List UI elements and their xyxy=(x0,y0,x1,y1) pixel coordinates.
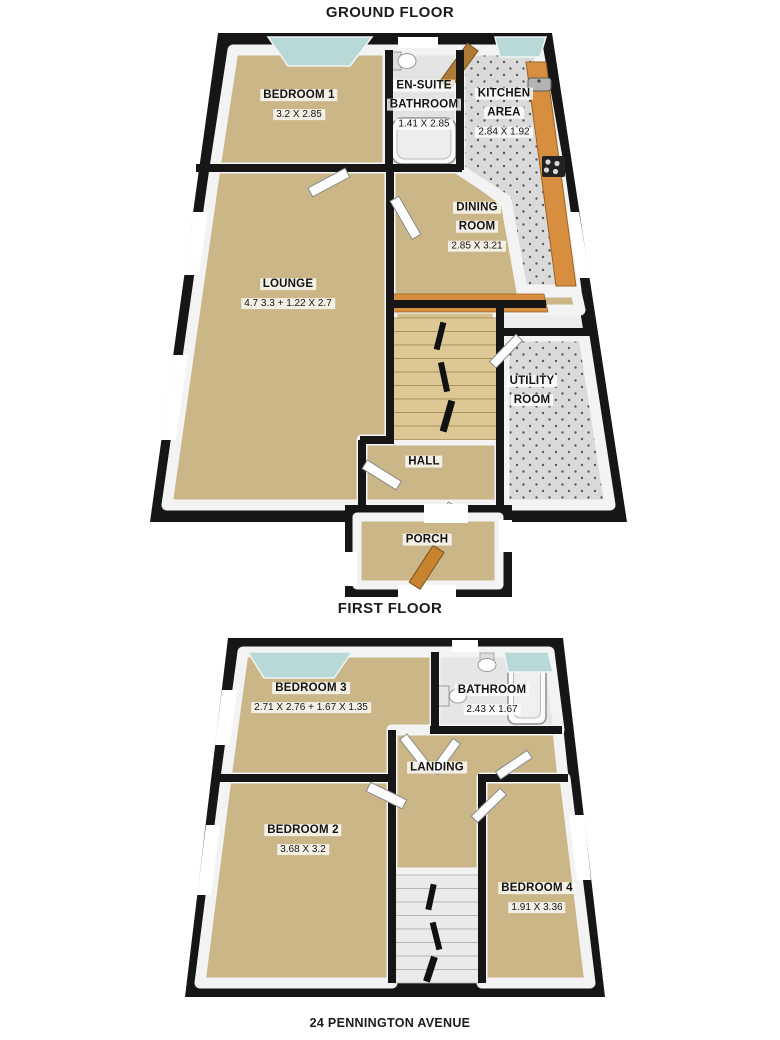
room-label-bedroom-2: BEDROOM 2 3.68 X 3.2 xyxy=(264,820,341,858)
room-name: UTILITY ROOM xyxy=(507,375,558,406)
toilet-shape xyxy=(398,54,416,69)
room-label-dining-room: DINING ROOM 2.85 X 3.21 xyxy=(448,198,506,255)
room-label-bedroom-4: BEDROOM 4 1.91 X 3.36 xyxy=(498,878,575,916)
room-name: KITCHEN AREA xyxy=(475,88,534,119)
first-floor-plan xyxy=(185,638,605,997)
room-label-lounge: LOUNGE 4.7 3.3 + 1.22 X 2.7 xyxy=(241,274,335,312)
room-dims: 2.84 X 1.92 xyxy=(475,126,532,137)
room-dims: 2.71 X 2.76 + 1.67 X 1.35 xyxy=(251,702,371,713)
room-label-landing: LANDING xyxy=(407,758,467,777)
room-label-ensuite-bathroom: EN-SUITE BATHROOM 1.41 X 2.85 xyxy=(382,76,466,133)
room-name: BEDROOM 1 xyxy=(260,89,337,101)
room-label-bathroom: BATHROOM 2.43 X 1.67 xyxy=(455,680,529,718)
room-label-bedroom-3: BEDROOM 3 2.71 X 2.76 + 1.67 X 1.35 xyxy=(251,678,371,716)
room-dims: 2.85 X 3.21 xyxy=(448,240,505,251)
room-name: BEDROOM 3 xyxy=(272,682,349,694)
room-label-porch: PORCH xyxy=(403,530,452,549)
room-name: PORCH xyxy=(403,534,452,546)
property-address: 24 PENNINGTON AVENUE xyxy=(0,1016,780,1030)
sink-shape xyxy=(478,659,496,672)
room-name: HALL xyxy=(405,456,442,468)
floorplan-drawing xyxy=(0,0,780,1040)
room-name: DINING ROOM xyxy=(453,202,500,233)
room-dims: 2.43 X 1.67 xyxy=(463,704,520,715)
room-name: EN-SUITE BATHROOM xyxy=(387,80,461,111)
room-name: BATHROOM xyxy=(455,684,529,696)
room-name: BEDROOM 2 xyxy=(264,824,341,836)
ground-floor-title: GROUND FLOOR xyxy=(0,4,780,21)
room-dims: 4.7 3.3 + 1.22 X 2.7 xyxy=(241,298,335,309)
room-name: LOUNGE xyxy=(260,278,316,290)
room-label-kitchen-area: KITCHEN AREA 2.84 X 1.92 xyxy=(473,84,535,141)
room-label-bedroom-1: BEDROOM 1 3.2 X 2.85 xyxy=(260,85,337,123)
room-name: LANDING xyxy=(407,762,467,774)
floorplan-image: GROUND FLOOR FIRST FLOOR BEDROOM 1 3.2 X… xyxy=(0,0,780,1040)
room-floor-bedroom-2 xyxy=(200,778,392,983)
staircase-first xyxy=(394,875,480,983)
room-label-hall: HALL xyxy=(405,452,442,471)
room-dims: 1.91 X 3.36 xyxy=(508,902,565,913)
room-label-utility-room: UTILITY ROOM xyxy=(505,371,559,409)
bay-window-glass xyxy=(248,652,352,678)
room-dims: 1.41 X 2.85 xyxy=(395,118,452,129)
room-name: BEDROOM 4 xyxy=(498,882,575,894)
room-dims: 3.2 X 2.85 xyxy=(273,109,325,120)
porch-structure xyxy=(345,504,512,597)
hob-shape xyxy=(542,156,565,177)
first-floor-title: FIRST FLOOR xyxy=(0,600,780,617)
room-dims: 3.68 X 3.2 xyxy=(277,844,329,855)
